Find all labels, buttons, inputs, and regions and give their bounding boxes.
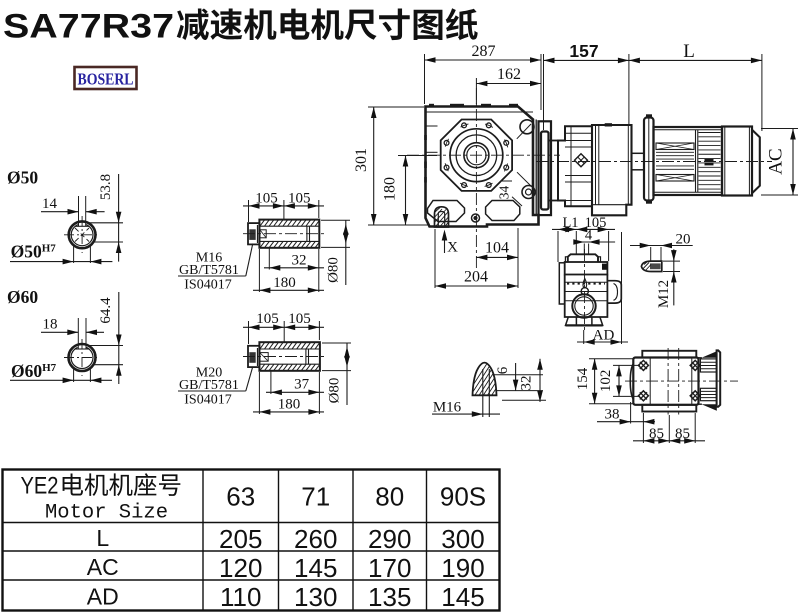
svg-text:180: 180 — [273, 275, 296, 291]
svg-text:14: 14 — [42, 196, 58, 212]
svg-text:205: 205 — [219, 524, 262, 554]
svg-text:37: 37 — [294, 377, 310, 393]
svg-text:157: 157 — [569, 41, 598, 61]
svg-text:71: 71 — [301, 482, 330, 512]
svg-text:53.8: 53.8 — [98, 174, 114, 200]
svg-text:IS04017: IS04017 — [184, 277, 231, 292]
svg-text:32: 32 — [519, 376, 535, 391]
svg-text:130: 130 — [294, 582, 337, 612]
svg-text:80: 80 — [375, 482, 404, 512]
svg-text:300: 300 — [441, 524, 484, 554]
svg-text:32: 32 — [292, 253, 307, 269]
svg-text:287: 287 — [472, 43, 496, 60]
svg-text:301: 301 — [353, 148, 370, 172]
svg-text:L: L — [683, 41, 695, 62]
svg-text:120: 120 — [219, 553, 262, 583]
svg-text:18: 18 — [43, 317, 58, 333]
svg-text:180: 180 — [278, 397, 301, 413]
svg-text:SA77R37: SA77R37 — [3, 7, 174, 45]
svg-text:34: 34 — [497, 186, 512, 200]
svg-text:135: 135 — [368, 582, 411, 612]
svg-text:290: 290 — [368, 524, 411, 554]
svg-text:Motor Size: Motor Size — [45, 502, 168, 525]
svg-text:6: 6 — [495, 366, 511, 374]
svg-text:64.4: 64.4 — [98, 297, 114, 324]
svg-text:180: 180 — [382, 177, 399, 201]
svg-text:102: 102 — [598, 370, 614, 393]
svg-text:BOSERL: BOSERL — [78, 70, 134, 89]
svg-text:AD: AD — [87, 584, 119, 610]
svg-text:154: 154 — [575, 367, 591, 390]
svg-text:162: 162 — [497, 66, 521, 83]
svg-text:90S: 90S — [440, 482, 486, 512]
svg-text:Ø80: Ø80 — [327, 378, 343, 404]
svg-text:204: 204 — [464, 269, 488, 286]
svg-text:145: 145 — [294, 553, 337, 583]
svg-text:190: 190 — [441, 553, 484, 583]
svg-text:M12: M12 — [656, 280, 672, 308]
svg-text:63: 63 — [226, 482, 255, 512]
svg-text:170: 170 — [368, 553, 411, 583]
svg-text:105: 105 — [256, 311, 279, 327]
svg-text:AC: AC — [87, 554, 119, 580]
svg-text:105: 105 — [288, 311, 311, 327]
svg-text:145: 145 — [441, 582, 484, 612]
svg-text:YE2: YE2 — [21, 473, 59, 500]
svg-text:4: 4 — [585, 228, 593, 244]
svg-text:Ø50: Ø50 — [7, 168, 38, 188]
svg-text:IS04017: IS04017 — [184, 392, 231, 407]
svg-text:M16: M16 — [433, 400, 462, 416]
svg-text:Ø80: Ø80 — [325, 257, 341, 283]
svg-text:L: L — [96, 525, 109, 551]
svg-text:38: 38 — [605, 407, 620, 423]
svg-text:X: X — [447, 240, 458, 256]
svg-text:260: 260 — [294, 524, 337, 554]
svg-text:Ø60: Ø60 — [7, 287, 38, 307]
svg-text:104: 104 — [485, 240, 509, 257]
svg-text:110: 110 — [220, 582, 261, 612]
